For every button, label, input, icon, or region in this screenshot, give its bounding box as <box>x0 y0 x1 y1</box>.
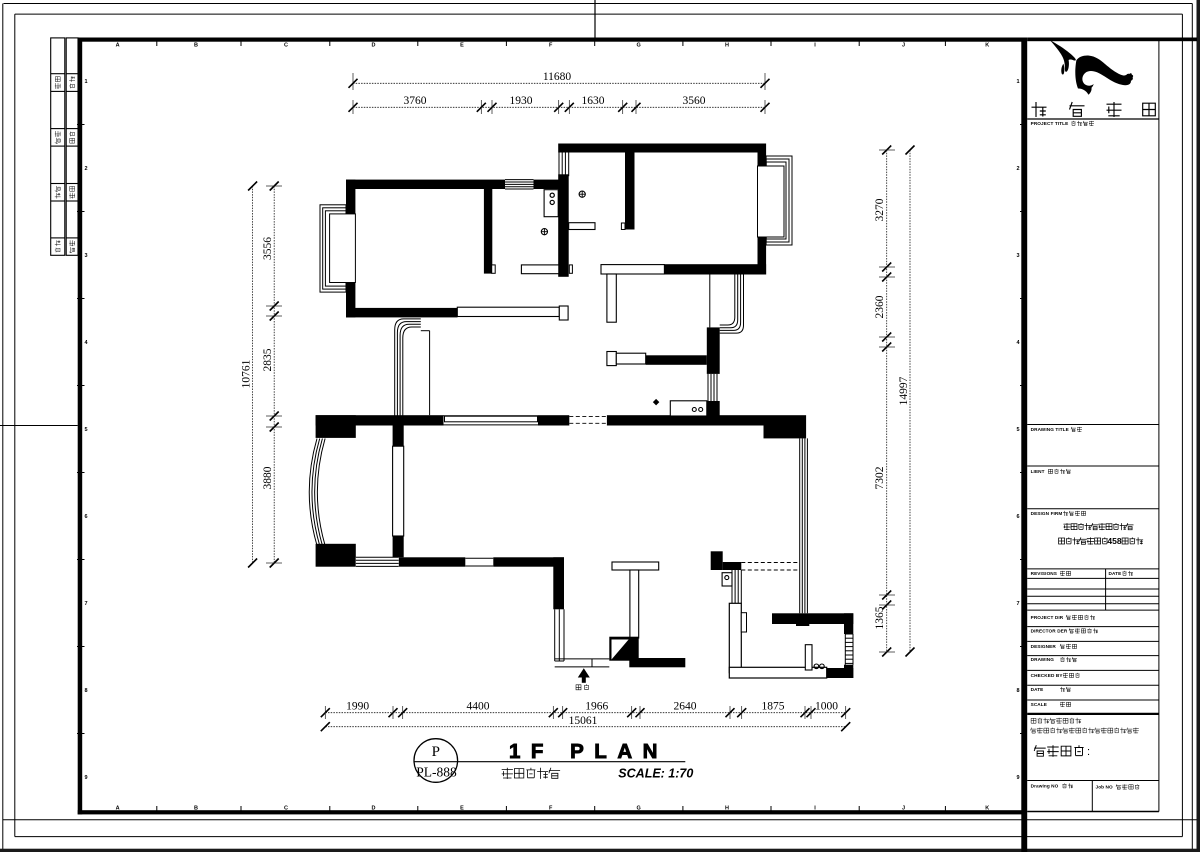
svg-text:2640: 2640 <box>674 701 697 713</box>
svg-text:DATE: DATE <box>1031 687 1044 692</box>
svg-text:REVISIONS: REVISIONS <box>1031 571 1057 576</box>
svg-text:DESIGNER: DESIGNER <box>1031 644 1057 649</box>
svg-text:PL-888: PL-888 <box>416 765 457 780</box>
svg-text:DRAWING TITLE: DRAWING TITLE <box>1031 427 1069 432</box>
svg-text:E: E <box>460 806 464 812</box>
svg-text:6: 6 <box>1016 514 1019 520</box>
svg-text:9: 9 <box>85 775 88 781</box>
svg-text:1: 1 <box>85 79 88 85</box>
svg-text:D: D <box>372 43 376 49</box>
svg-text:PROJECT DIR: PROJECT DIR <box>1031 615 1064 620</box>
svg-text:DATE: DATE <box>1109 571 1122 576</box>
svg-text:1966: 1966 <box>585 701 608 713</box>
svg-text:3560: 3560 <box>683 95 706 107</box>
svg-text:A: A <box>116 806 120 812</box>
svg-text:DRAWING: DRAWING <box>1031 657 1055 662</box>
svg-text:J: J <box>902 806 905 812</box>
svg-text:458: 458 <box>1107 536 1121 546</box>
svg-text:3270: 3270 <box>874 198 886 221</box>
svg-text:LIENT: LIENT <box>1031 469 1045 474</box>
svg-text:P: P <box>432 744 440 760</box>
svg-text:8: 8 <box>85 688 88 694</box>
svg-text:3760: 3760 <box>404 95 427 107</box>
svg-text:C: C <box>284 806 288 812</box>
svg-text::: : <box>1087 746 1090 758</box>
svg-text:3: 3 <box>85 253 88 259</box>
svg-text:7: 7 <box>85 601 88 607</box>
svg-text:7: 7 <box>1016 601 1019 607</box>
svg-text:CHECKED BY: CHECKED BY <box>1031 673 1064 678</box>
svg-text:H: H <box>725 43 729 49</box>
svg-text:K: K <box>985 43 989 49</box>
svg-text:C: C <box>284 43 288 49</box>
svg-text:D: D <box>372 806 376 812</box>
svg-text:1630: 1630 <box>582 95 605 107</box>
svg-text:K: K <box>985 806 989 812</box>
svg-text:1930: 1930 <box>510 95 533 107</box>
svg-text:DIRECTOR DER: DIRECTOR DER <box>1031 629 1068 634</box>
svg-text:14997: 14997 <box>898 376 910 405</box>
svg-text:J: J <box>902 43 905 49</box>
svg-text:PROJECT TITLE: PROJECT TITLE <box>1031 121 1069 126</box>
svg-text:9: 9 <box>1016 775 1019 781</box>
svg-text:3556: 3556 <box>262 237 274 260</box>
svg-text:4400: 4400 <box>467 701 490 713</box>
svg-text:5: 5 <box>85 427 88 433</box>
svg-text:10761: 10761 <box>241 359 253 388</box>
svg-text:1000: 1000 <box>815 701 838 713</box>
svg-text:1: 1 <box>1016 79 1019 85</box>
svg-text:2: 2 <box>85 166 88 172</box>
svg-text:Job NO: Job NO <box>1096 785 1114 790</box>
svg-text:8: 8 <box>1016 688 1019 694</box>
svg-text:SCALE: 1:70: SCALE: 1:70 <box>618 767 693 781</box>
svg-text:1F PLAN: 1F PLAN <box>509 740 668 763</box>
svg-text:1365: 1365 <box>874 606 886 629</box>
svg-text:1875: 1875 <box>762 701 785 713</box>
svg-text:Drawing NO: Drawing NO <box>1031 784 1059 789</box>
svg-text:11680: 11680 <box>543 71 572 83</box>
svg-text:H: H <box>725 806 729 812</box>
svg-text:SCALE: SCALE <box>1031 702 1047 707</box>
svg-text:2360: 2360 <box>874 295 886 318</box>
svg-text:DESIGN FIRM: DESIGN FIRM <box>1031 511 1063 516</box>
svg-text:G: G <box>637 806 641 812</box>
svg-text:5: 5 <box>1016 427 1019 433</box>
svg-text:1990: 1990 <box>346 701 369 713</box>
svg-text:B: B <box>194 43 198 49</box>
svg-text:2: 2 <box>1016 166 1019 172</box>
svg-text:G: G <box>637 43 641 49</box>
svg-text:B: B <box>194 806 198 812</box>
svg-text:2835: 2835 <box>262 348 274 371</box>
svg-text:6: 6 <box>85 514 88 520</box>
svg-text:7302: 7302 <box>874 466 886 489</box>
svg-text:15061: 15061 <box>569 715 598 727</box>
svg-text:3: 3 <box>1016 253 1019 259</box>
svg-text:3880: 3880 <box>262 466 274 489</box>
svg-text:E: E <box>460 43 464 49</box>
svg-text:A: A <box>116 43 120 49</box>
